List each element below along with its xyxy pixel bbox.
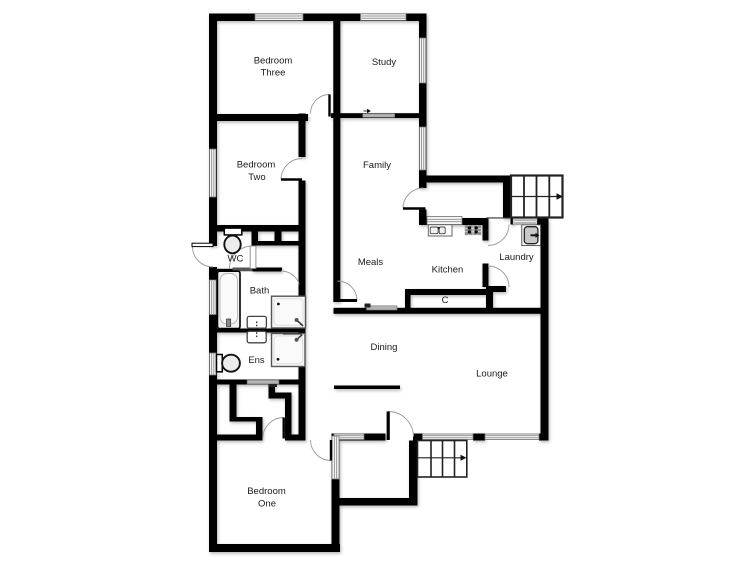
- svg-text:Study: Study: [372, 57, 397, 68]
- svg-text:Two: Two: [248, 172, 265, 183]
- svg-text:One: One: [258, 499, 276, 510]
- svg-text:C: C: [442, 295, 449, 306]
- svg-text:Ens: Ens: [248, 355, 265, 366]
- svg-text:Family: Family: [363, 160, 391, 171]
- svg-text:Bedroom: Bedroom: [254, 56, 293, 67]
- svg-text:Laundry: Laundry: [499, 252, 534, 263]
- svg-text:Bath: Bath: [250, 286, 270, 297]
- svg-text:Three: Three: [261, 68, 286, 79]
- svg-text:Bedroom: Bedroom: [247, 486, 286, 497]
- svg-text:Lounge: Lounge: [476, 369, 508, 380]
- svg-text:WC: WC: [227, 254, 243, 265]
- svg-text:Meals: Meals: [358, 257, 384, 268]
- svg-text:Dining: Dining: [371, 342, 398, 353]
- svg-text:Bedroom: Bedroom: [237, 160, 276, 171]
- svg-text:Kitchen: Kitchen: [432, 265, 464, 276]
